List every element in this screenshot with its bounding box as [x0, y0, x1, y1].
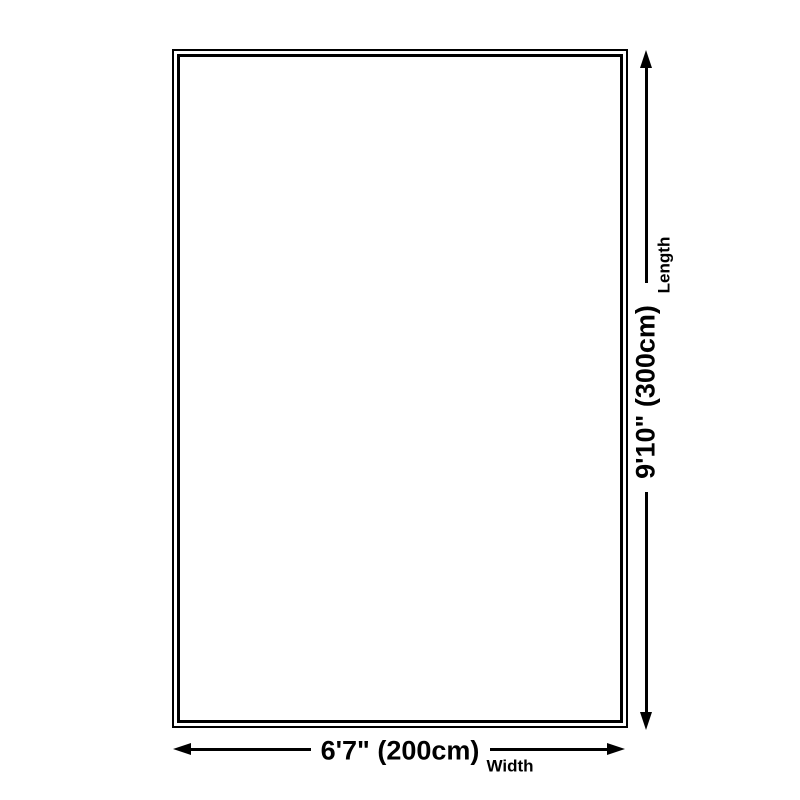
- arrow-right-icon: [607, 743, 625, 755]
- length-arrow-line-top: [645, 64, 648, 283]
- product-outline: [172, 49, 628, 728]
- dimension-diagram: 9'10" (300cm) Length 6'7" (200cm) Width: [0, 0, 800, 800]
- width-axis-label: Width: [486, 758, 533, 775]
- width-arrow-line-left: [187, 748, 311, 751]
- length-value-label: 9'10" (300cm): [633, 305, 660, 479]
- length-arrow-line-bottom: [645, 492, 648, 713]
- product-inner-border: [177, 54, 623, 723]
- width-arrow-line-right: [490, 748, 610, 751]
- length-axis-label: Length: [656, 237, 673, 294]
- arrow-down-icon: [640, 712, 652, 730]
- width-value-label: 6'7" (200cm): [321, 738, 480, 765]
